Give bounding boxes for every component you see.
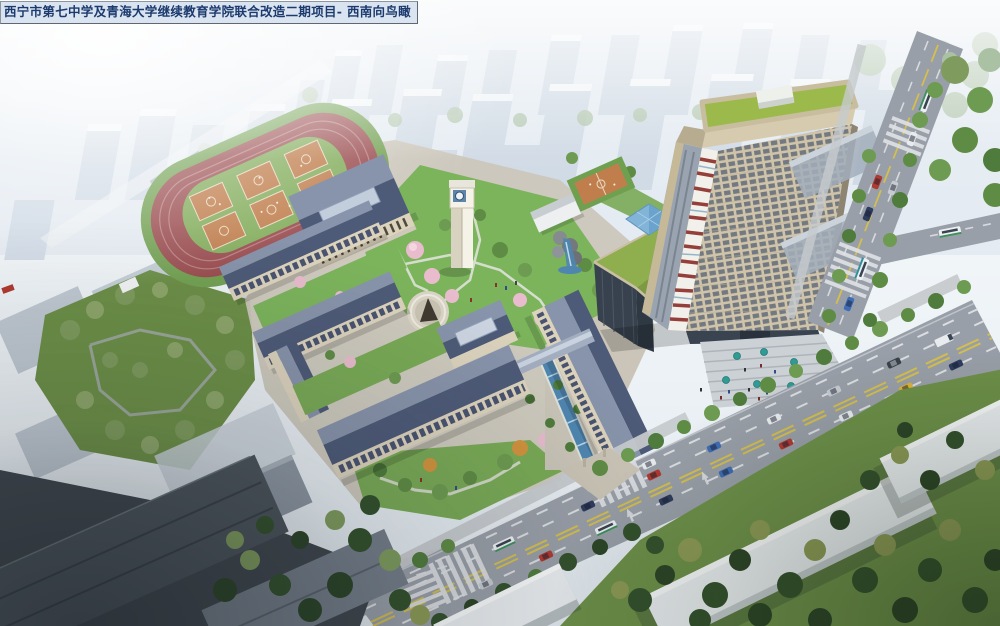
aerial-scene	[0, 0, 1000, 626]
title-text: 西宁市第七中学及青海大学继续教育学院联合改造二期项目- 西南向鸟瞰	[4, 4, 411, 19]
vignette	[0, 0, 1000, 626]
rendering-canvas: 西宁市第七中学及青海大学继续教育学院联合改造二期项目- 西南向鸟瞰	[0, 0, 1000, 626]
title-bar: 西宁市第七中学及青海大学继续教育学院联合改造二期项目- 西南向鸟瞰	[0, 1, 418, 24]
